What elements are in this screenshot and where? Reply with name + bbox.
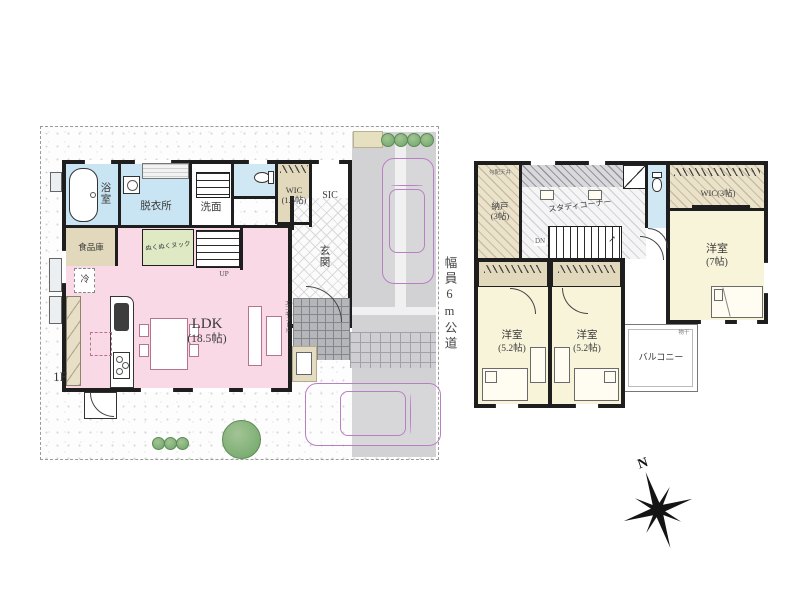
window xyxy=(700,320,726,324)
bedroom7-label: 洋室 xyxy=(706,243,728,255)
car-icon xyxy=(305,383,441,446)
wic1f-size: (1.5帖) xyxy=(282,196,307,206)
wall-segment xyxy=(764,161,768,324)
car-icon xyxy=(382,158,434,284)
wic2f-label: WIC(3帖) xyxy=(701,189,736,199)
balcony-label: バルコニー xyxy=(639,352,684,362)
car-cabin xyxy=(389,189,425,253)
closet-rod-marks xyxy=(484,265,542,273)
bedroom-left-label: 洋室 xyxy=(502,330,523,342)
window xyxy=(62,250,66,284)
stove-burner xyxy=(122,362,129,369)
stairs-up-label: UP xyxy=(219,270,229,278)
stairs-1f-lower xyxy=(196,172,230,198)
window xyxy=(764,262,768,294)
study-desk xyxy=(540,190,554,200)
stove-burner xyxy=(116,368,123,375)
sloped-ceiling-label: 勾配天井 xyxy=(489,170,511,176)
storeroom-size: (3帖) xyxy=(491,212,509,222)
bush-icon xyxy=(381,133,395,147)
storage-box xyxy=(90,332,112,356)
toilet-icon xyxy=(652,178,662,192)
compass-icon: N xyxy=(608,448,708,566)
window xyxy=(530,161,556,165)
wall-segment xyxy=(645,161,648,228)
wall-segment xyxy=(115,228,118,266)
pantry-label: 食品庫 xyxy=(78,243,104,253)
pillow xyxy=(485,371,497,383)
vanity-counter xyxy=(142,163,189,179)
road-label: 幅員6m公道 xyxy=(443,256,456,352)
toilet-tank xyxy=(268,171,274,184)
bathroom-label: 浴室 xyxy=(99,182,110,205)
window xyxy=(495,404,519,408)
ac-unit xyxy=(50,172,62,192)
car-windshield xyxy=(410,394,411,434)
window xyxy=(588,161,606,165)
closet-rod-marks xyxy=(558,265,616,273)
chair xyxy=(139,344,149,357)
pillow xyxy=(604,371,616,383)
wall-segment xyxy=(231,161,234,226)
wall-segment xyxy=(275,161,278,224)
wall-segment xyxy=(277,222,312,225)
wic2f-rod xyxy=(692,205,750,210)
storeroom-label: 納戸 (3帖) xyxy=(491,202,509,221)
water-heater-unit xyxy=(296,352,312,375)
washer-drum xyxy=(127,180,138,191)
stairs-down-label: DN xyxy=(534,238,546,246)
driveway-divider xyxy=(352,307,436,315)
tree-icon xyxy=(222,420,261,459)
bush-icon xyxy=(176,437,189,450)
desk xyxy=(530,347,546,383)
bush-icon xyxy=(407,133,421,147)
window xyxy=(84,160,112,164)
coffee-table xyxy=(266,316,282,356)
wall-segment xyxy=(64,225,292,228)
corner-closet xyxy=(623,165,646,189)
car-windshield xyxy=(391,185,423,186)
kitchen-sink xyxy=(114,303,129,331)
sofa xyxy=(248,306,262,366)
stairs-arrow-icon: ↗ xyxy=(608,234,616,244)
entrance-label: 玄関 xyxy=(318,245,329,268)
sic-label: SIC xyxy=(322,190,338,201)
desk xyxy=(554,347,570,383)
pantry-shelves xyxy=(66,296,81,386)
wall-segment xyxy=(233,196,277,199)
pillow xyxy=(714,289,723,301)
stove-burner xyxy=(116,356,123,363)
wall-segment xyxy=(621,258,625,408)
compass: N xyxy=(608,448,708,566)
approach-tiles xyxy=(350,332,436,368)
window xyxy=(192,388,230,392)
ac-unit xyxy=(49,258,62,292)
window xyxy=(736,320,758,324)
stairs-1f xyxy=(196,230,240,268)
fridge-label: 冷 xyxy=(80,274,89,284)
bedroom7-size: (7帖) xyxy=(706,257,728,268)
drying-pole-label: 物干 xyxy=(678,330,689,336)
bedroom-right-label: 洋室 xyxy=(577,330,598,342)
closet-rod-marks xyxy=(674,168,760,176)
window xyxy=(242,388,272,392)
window xyxy=(140,388,174,392)
ldk-label: LDK xyxy=(192,316,223,333)
wall-segment xyxy=(548,259,552,408)
bathtub-drain xyxy=(90,192,96,198)
dressing-label: 脱衣所 xyxy=(140,201,172,213)
bedroom-left-size: (5.2帖) xyxy=(498,344,526,355)
wall-segment xyxy=(118,161,121,226)
chair xyxy=(189,344,199,357)
ldk-size-label: (18.5帖) xyxy=(187,333,226,346)
compass-north-label: N xyxy=(636,455,650,472)
wall-segment xyxy=(189,161,192,226)
closet-rod-marks xyxy=(280,165,308,173)
chair xyxy=(139,324,149,337)
wall-segment xyxy=(474,161,478,262)
floor-plan-canvas: 浴室 脱衣所 洗面 WIC (1.5帖) SIC 玄関 食品庫 ぬくぬくヌック … xyxy=(0,0,800,600)
bush-icon xyxy=(420,133,434,147)
planter-strip xyxy=(353,131,383,148)
window xyxy=(575,404,599,408)
bedroom-right-size: (5.2帖) xyxy=(573,344,601,355)
wic1f-label: WIC (1.5帖) xyxy=(282,186,307,205)
window xyxy=(318,160,340,164)
wall-segment xyxy=(240,228,243,270)
toilet-tank xyxy=(652,172,662,178)
water-heater-label: エコキュート xyxy=(283,300,289,333)
dining-table xyxy=(150,318,188,370)
wall-segment xyxy=(309,161,312,227)
car-cabin xyxy=(340,391,406,436)
wall-segment xyxy=(519,161,522,259)
ac-unit xyxy=(49,296,62,324)
wall-segment xyxy=(474,258,478,408)
washroom-label: 洗面 xyxy=(201,202,222,214)
floor1-label: 1F xyxy=(53,370,67,385)
bush-icon xyxy=(394,133,408,147)
window xyxy=(248,160,268,164)
